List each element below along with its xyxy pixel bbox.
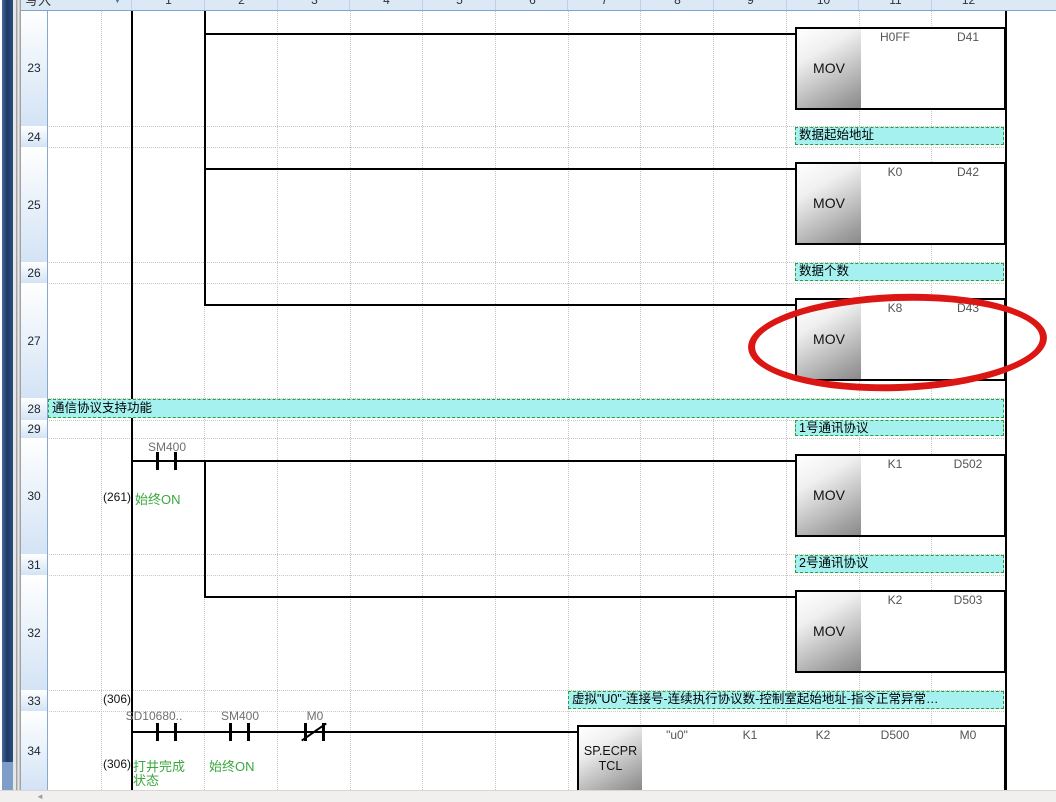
- column-header-bar: 写入 ▼ 1 2 3 4 5 6 7 8 9 10 11 12: [21, 0, 1056, 11]
- row-header-33[interactable]: 33: [21, 690, 48, 712]
- row-header-27[interactable]: 27: [21, 283, 48, 399]
- column-header-3: 3: [277, 0, 351, 10]
- instruction-name-box: MOV: [797, 29, 861, 108]
- grid-hline: [47, 147, 1006, 148]
- step-number-row30: (261): [97, 490, 131, 504]
- rung-wire-32: [205, 596, 795, 598]
- operand-dest: D503: [932, 593, 1004, 607]
- contact-bar: [156, 723, 159, 741]
- row-header-34[interactable]: 34: [21, 711, 48, 791]
- column-header-8: 8: [640, 0, 714, 10]
- instruction-name-line1: SP.ECPR: [584, 744, 637, 758]
- comment-row24[interactable]: 数据起始地址: [795, 127, 1004, 145]
- ladder-editor: SM400 SD10680.. SM400 M0 MOV H0FF D41 MO…: [0, 0, 1056, 802]
- rung-wire-25: [205, 168, 795, 170]
- column-header-10: 10: [786, 0, 860, 10]
- rung-wire-23: [205, 33, 795, 35]
- operand-source: H0FF: [859, 30, 931, 44]
- column-header-12: 12: [931, 0, 1005, 10]
- operand-s2: K2: [787, 728, 859, 742]
- rung-wire-30: [133, 460, 795, 462]
- instruction-name-box: SP.ECPR TCL: [579, 727, 642, 790]
- right-power-rail: [1005, 10, 1007, 790]
- rung-wire-34: [133, 731, 577, 733]
- operand-dest: D42: [932, 165, 1004, 179]
- instruction-name-box: MOV: [797, 164, 861, 243]
- grid-hline: [47, 438, 1006, 439]
- row-header-30[interactable]: 30: [21, 438, 48, 555]
- mode-label[interactable]: 写入: [25, 0, 51, 10]
- step-number-row34: (306): [97, 757, 131, 771]
- contact-bar: [229, 723, 232, 741]
- contact-bar: [174, 723, 177, 741]
- h-scrollbar[interactable]: ◄: [0, 790, 1056, 802]
- column-header-9: 9: [713, 0, 787, 10]
- scrollbar-left-arrow-icon[interactable]: ◄: [36, 791, 44, 802]
- device-comment-always-on: 始终ON: [209, 756, 255, 775]
- operand-source: K8: [859, 301, 931, 315]
- comment-row33[interactable]: 虚拟"U0"-连接号-连续执行协议数-控制室起始地址-指令正常异常…: [568, 691, 1004, 709]
- contact-bar: [247, 723, 250, 741]
- row-header-31[interactable]: 31: [21, 554, 48, 576]
- column-header-11: 11: [858, 0, 932, 10]
- instruction-name-box: MOV: [797, 592, 861, 671]
- operand-dest: D502: [932, 457, 1004, 471]
- comment-row28[interactable]: 通信协议支持功能: [48, 399, 1004, 418]
- branch-line: [204, 461, 206, 598]
- operand-s1: K1: [714, 728, 786, 742]
- contact-label: M0: [270, 709, 360, 723]
- comment-row29[interactable]: 1号通讯协议: [795, 420, 1004, 436]
- operand-source: K2: [859, 593, 931, 607]
- dropdown-arrow-icon[interactable]: ▼: [113, 0, 122, 10]
- operand-d: M0: [932, 728, 1004, 742]
- rung-wire-27: [205, 304, 795, 306]
- dock-edge-bar: [2, 0, 13, 790]
- grid-hline: [47, 283, 1006, 284]
- instruction-name-line2: TCL: [599, 759, 623, 773]
- row-header-28[interactable]: 28: [21, 398, 48, 421]
- column-header-6: 6: [495, 0, 569, 10]
- operand-dest: D43: [932, 301, 1004, 315]
- operand-source: K0: [859, 165, 931, 179]
- row-header-23[interactable]: 23: [21, 10, 48, 127]
- operand-source: K1: [859, 457, 931, 471]
- row-header-26[interactable]: 26: [21, 262, 48, 284]
- column-header-2: 2: [204, 0, 278, 10]
- contact-bar: [174, 452, 177, 470]
- step-number-row33: (306): [97, 692, 131, 706]
- operand-dest: D41: [932, 30, 1004, 44]
- branch-line: [204, 10, 206, 306]
- column-header-7: 7: [567, 0, 641, 10]
- column-header-1: 1: [131, 0, 205, 10]
- row-header-29[interactable]: 29: [21, 420, 48, 439]
- instruction-name-box: MOV: [797, 300, 861, 379]
- comment-row31[interactable]: 2号通讯协议: [795, 555, 1004, 573]
- row-header-25[interactable]: 25: [21, 147, 48, 263]
- dock-edge-bar-highlight: [2, 762, 13, 790]
- row-header-24[interactable]: 24: [21, 126, 48, 148]
- device-comment-always-on: 始终ON: [135, 489, 181, 508]
- grid-hline: [47, 575, 1006, 576]
- operand-s3: D500: [859, 728, 931, 742]
- contact-bar: [156, 452, 159, 470]
- instruction-name-box: MOV: [797, 456, 861, 535]
- device-comment-line2: 状态: [133, 770, 159, 789]
- operand-unit: "u0": [641, 728, 713, 742]
- comment-row26[interactable]: 数据个数: [795, 263, 1004, 281]
- row-header-32[interactable]: 32: [21, 575, 48, 691]
- column-header-4: 4: [349, 0, 423, 10]
- contact-label: SD10680..: [109, 709, 199, 723]
- contact-label: SM400: [122, 440, 212, 454]
- column-header-5: 5: [422, 0, 496, 10]
